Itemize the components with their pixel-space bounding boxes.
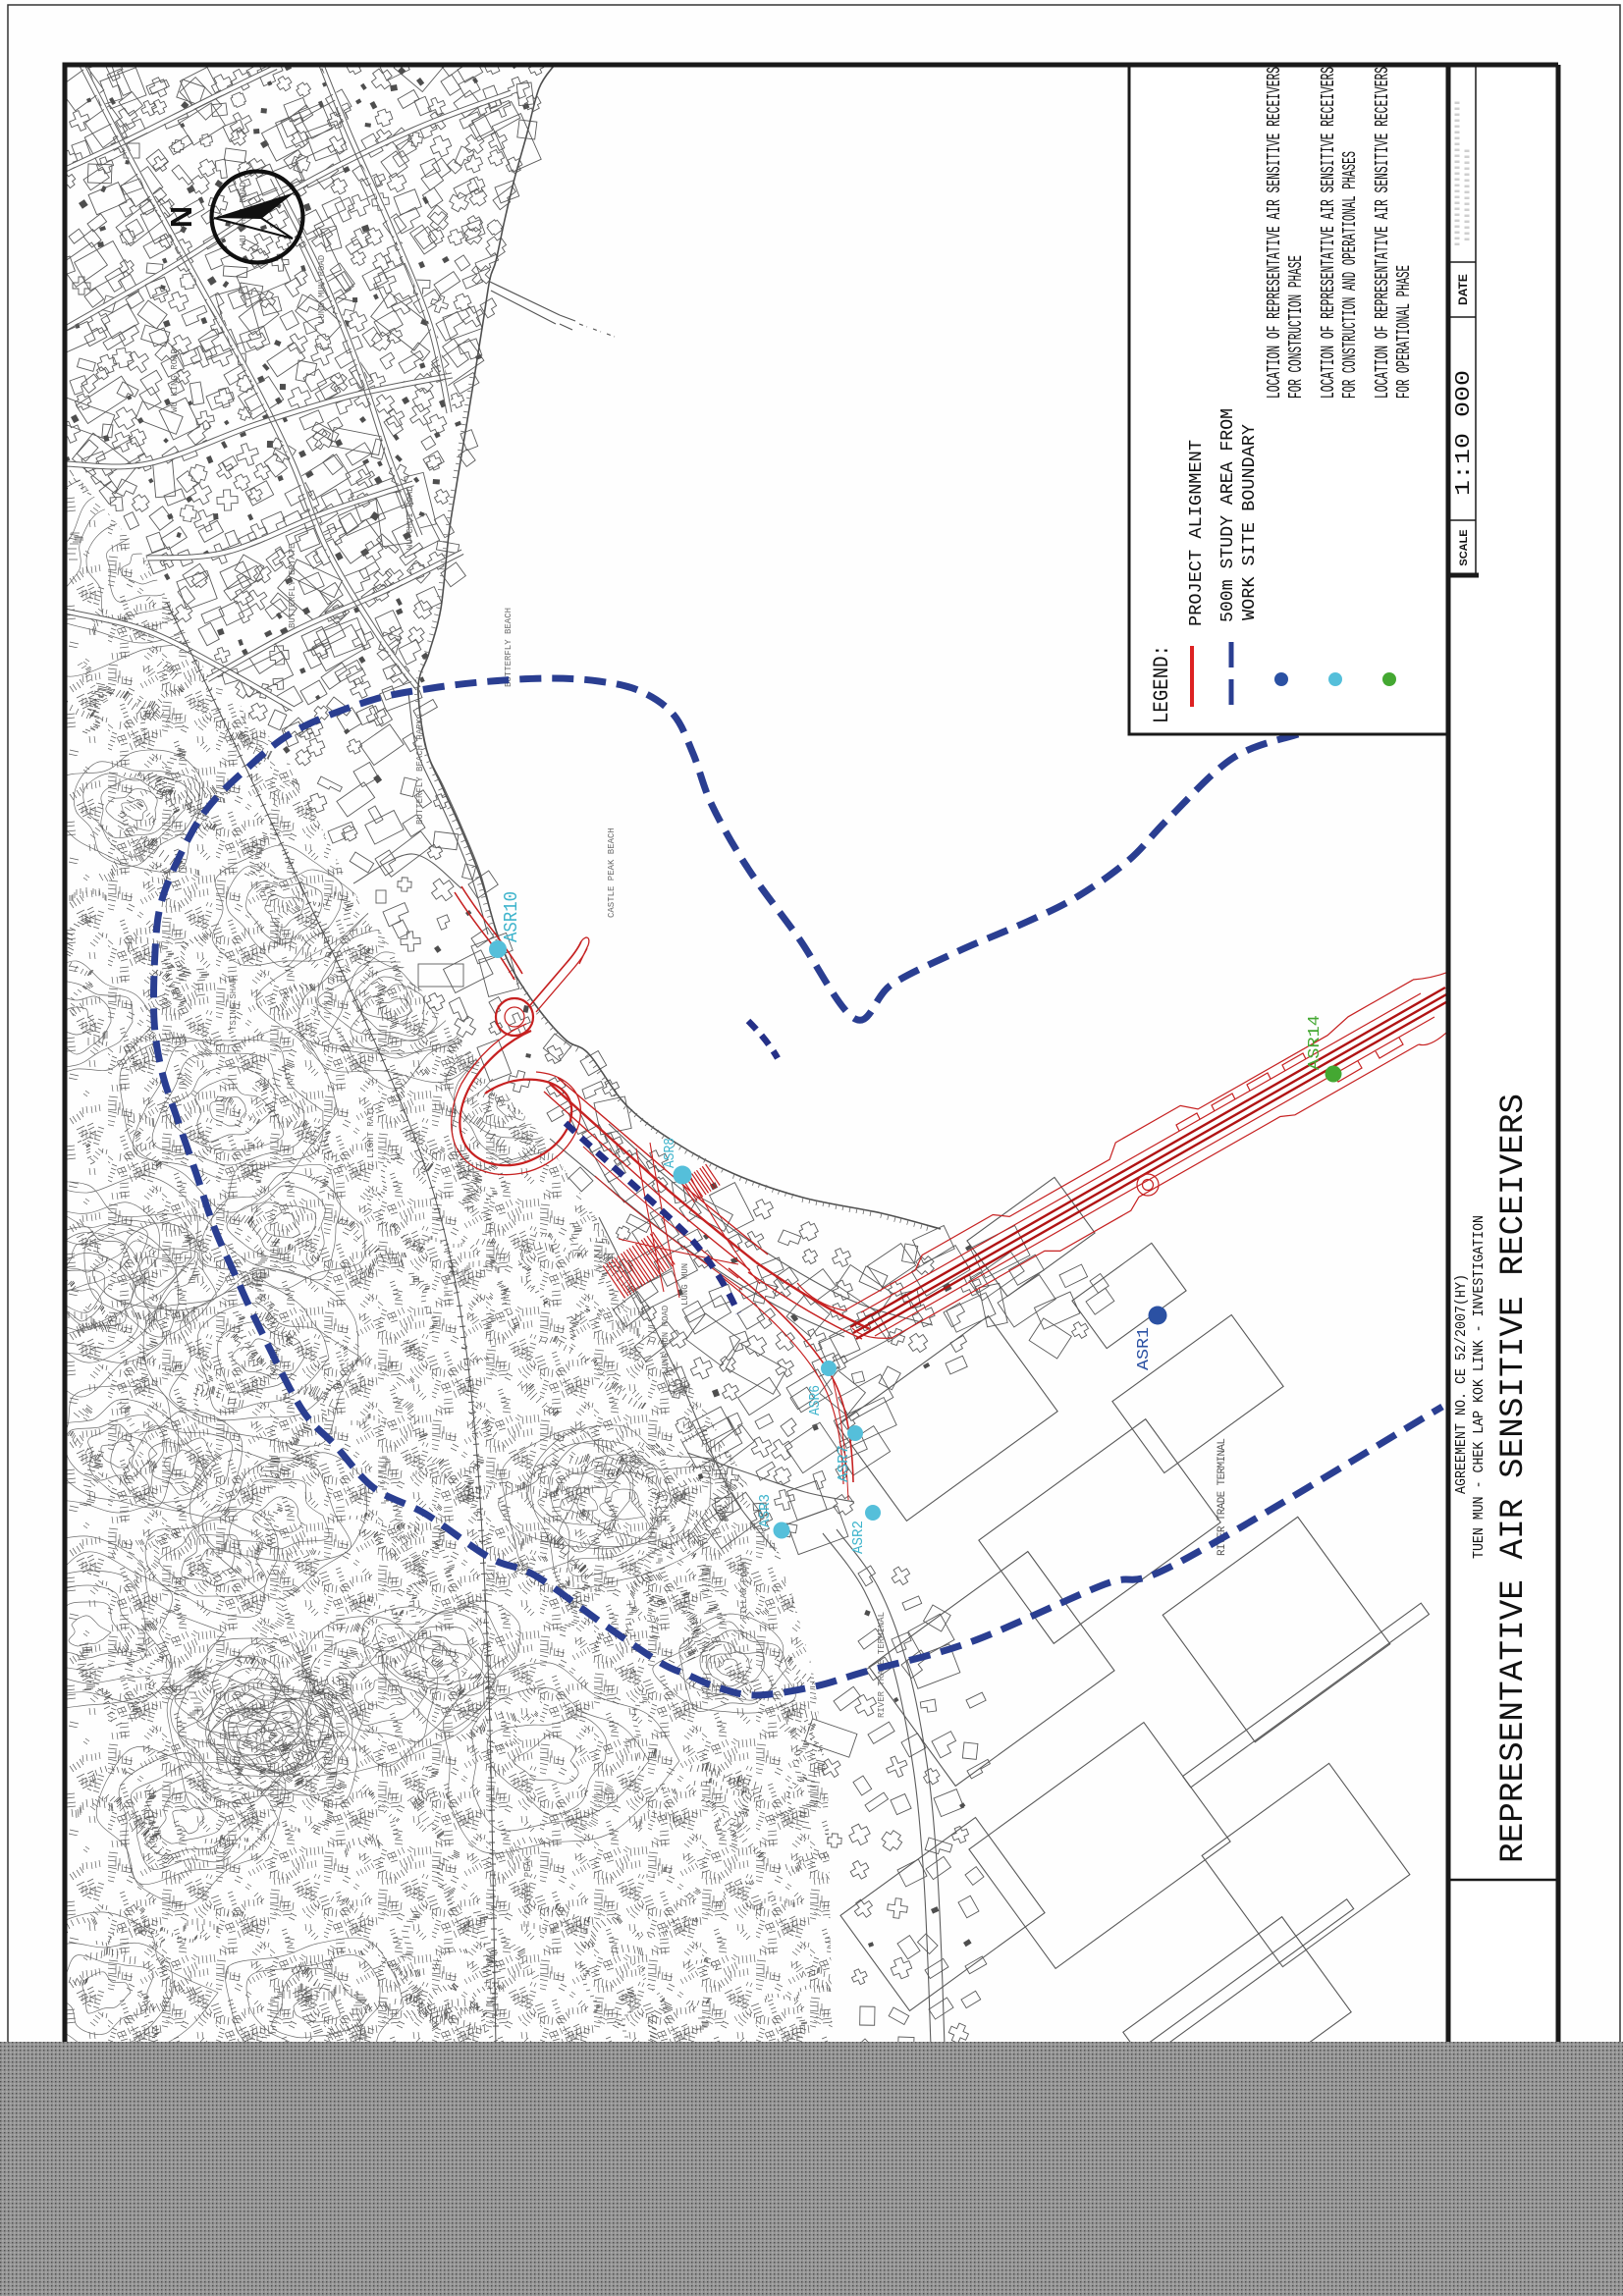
svg-text:WORK SITE BOUNDARY: WORK SITE BOUNDARY [1240, 424, 1260, 620]
svg-text:SCALE: SCALE [1458, 529, 1470, 565]
svg-text:LUNG MUN ROAD: LUNG MUN ROAD [317, 255, 327, 324]
svg-text:WU KING ROAD: WU KING ROAD [170, 348, 180, 412]
svg-text:ASR2: ASR2 [850, 1521, 867, 1554]
svg-text:FOR CONSTRUCTION AND OPERATION: FOR CONSTRUCTION AND OPERATIONAL PHASES [1339, 151, 1361, 399]
svg-text:TUEN MUN - CHEK LAP KOK LINK -: TUEN MUN - CHEK LAP KOK LINK - INVESTIGA… [1471, 1215, 1488, 1559]
svg-text:TSING SHAN: TSING SHAN [229, 978, 239, 1031]
svg-text:ASR8: ASR8 [662, 1138, 678, 1168]
svg-text:BUTTERFLY BEACH PARK: BUTTERFLY BEACH PARK [415, 718, 425, 825]
svg-text:PILLAR POINT: PILLAR POINT [739, 1556, 749, 1620]
svg-text:LOCATION OF REPRESENTATIVE AIR: LOCATION OF REPRESENTATIVE AIR SENSITIVE… [1372, 67, 1393, 399]
svg-text:FOR CONSTRUCTION PHASE: FOR CONSTRUCTION PHASE [1285, 255, 1307, 399]
svg-text:LOCATION OF REPRESENTATIVE AIR: LOCATION OF REPRESENTATIVE AIR SENSITIVE… [1318, 67, 1339, 399]
svg-text:LOCATION OF REPRESENTATIVE AIR: LOCATION OF REPRESENTATIVE AIR SENSITIVE… [1264, 67, 1285, 399]
svg-text:N: N [164, 206, 198, 228]
svg-text:ASR7: ASR7 [836, 1445, 852, 1482]
svg-text:BUTTERFLY ESTATE: BUTTERFLY ESTATE [288, 544, 298, 628]
svg-text:ASR3: ASR3 [757, 1494, 774, 1527]
svg-text:REPRESENTATIVE AIR SENSITIVE R: REPRESENTATIVE AIR SENSITIVE RECEIVERS [1495, 1094, 1533, 1863]
svg-text:500m STUDY AREA FROM: 500m STUDY AREA FROM [1218, 408, 1238, 622]
svg-text:PROJECT ALIGNMENT: PROJECT ALIGNMENT [1187, 440, 1207, 626]
svg-text:FOR OPERATIONAL PHASE: FOR OPERATIONAL PHASE [1393, 265, 1415, 399]
svg-text:1:10 000: 1:10 000 [1453, 370, 1476, 496]
svg-text:CASTLE PEAK: CASTLE PEAK [523, 1855, 533, 1914]
svg-text:AGREEMENT NO. CE 52/2007(HY): AGREEMENT NO. CE 52/2007(HY) [1453, 1274, 1470, 1494]
svg-text:WU CHUI ROAD: WU CHUI ROAD [406, 486, 415, 550]
svg-text:CASTLE PEAK BEACH: CASTLE PEAK BEACH [607, 828, 617, 918]
svg-text:DATE: DATE [1456, 274, 1470, 305]
svg-text:LIGHT RAIL: LIGHT RAIL [366, 1105, 376, 1158]
svg-text:ASR10: ASR10 [501, 891, 522, 942]
svg-text:ASR6: ASR6 [807, 1385, 824, 1415]
svg-text:BUTTERFLY BEACH: BUTTERFLY BEACH [504, 608, 514, 687]
svg-text:LUNG MUN ROAD: LUNG MUN ROAD [661, 1306, 671, 1374]
svg-text:ASR1: ASR1 [1135, 1327, 1154, 1370]
svg-text:LEGEND:: LEGEND: [1150, 645, 1174, 723]
svg-text:ASR14: ASR14 [1306, 1015, 1325, 1070]
svg-text:LUNG MUN: LUNG MUN [680, 1263, 690, 1306]
